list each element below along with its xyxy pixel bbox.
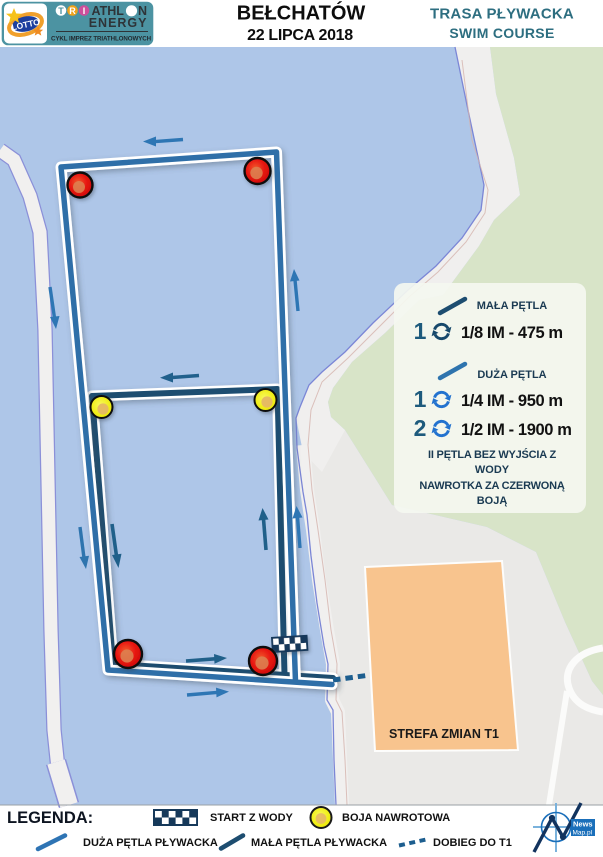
svg-text:1/4 IM - 950 m: 1/4 IM - 950 m <box>461 392 563 410</box>
svg-text:SWIM COURSE: SWIM COURSE <box>449 25 554 41</box>
svg-text:LEGENDA:: LEGENDA: <box>7 809 93 827</box>
svg-text:T: T <box>58 6 64 16</box>
svg-text:1/2 IM - 1900 m: 1/2 IM - 1900 m <box>461 421 571 439</box>
svg-text:DUŻA PĘTLA PŁYWACKA: DUŻA PĘTLA PŁYWACKA <box>83 836 218 849</box>
svg-text:BEŁCHATÓW: BEŁCHATÓW <box>237 1 366 25</box>
svg-text:WODY: WODY <box>475 464 510 476</box>
svg-text:I: I <box>83 6 86 16</box>
svg-text:MAŁA PĘTLA: MAŁA PĘTLA <box>477 300 548 312</box>
svg-text:1: 1 <box>414 386 427 412</box>
svg-text:DUŻA PĘTLA: DUŻA PĘTLA <box>477 368 546 381</box>
svg-text:ENERGY: ENERGY <box>89 16 148 30</box>
svg-text:DOBIEG DO T1: DOBIEG DO T1 <box>433 837 512 849</box>
svg-text:R: R <box>69 6 76 16</box>
svg-text:1: 1 <box>414 318 427 344</box>
svg-text:MAŁA PĘTLA PŁYWACKA: MAŁA PĘTLA PŁYWACKA <box>251 837 387 849</box>
svg-text:NAWROTKA ZA CZERWONĄ: NAWROTKA ZA CZERWONĄ <box>419 480 565 492</box>
svg-text:II PĘTLA BEZ WYJŚCIA Z: II PĘTLA BEZ WYJŚCIA Z <box>428 448 556 461</box>
svg-text:News: News <box>573 820 593 829</box>
svg-text:BOJĄ: BOJĄ <box>477 495 508 507</box>
svg-text:STREFA ZMIAN T1: STREFA ZMIAN T1 <box>389 727 499 741</box>
svg-text:BOJA NAWROTOWA: BOJA NAWROTOWA <box>342 812 450 824</box>
svg-text:2: 2 <box>414 415 427 441</box>
svg-text:START Z WODY: START Z WODY <box>210 812 294 824</box>
svg-text:Map.pl: Map.pl <box>573 830 593 837</box>
svg-text:TRASA PŁYWACKA: TRASA PŁYWACKA <box>430 6 574 23</box>
svg-text:22 LIPCA 2018: 22 LIPCA 2018 <box>247 27 353 44</box>
svg-text:CYKL IMPREZ TRIATHLONOWYCH: CYKL IMPREZ TRIATHLONOWYCH <box>51 36 152 43</box>
svg-text:1/8 IM - 475 m: 1/8 IM - 475 m <box>461 324 563 342</box>
